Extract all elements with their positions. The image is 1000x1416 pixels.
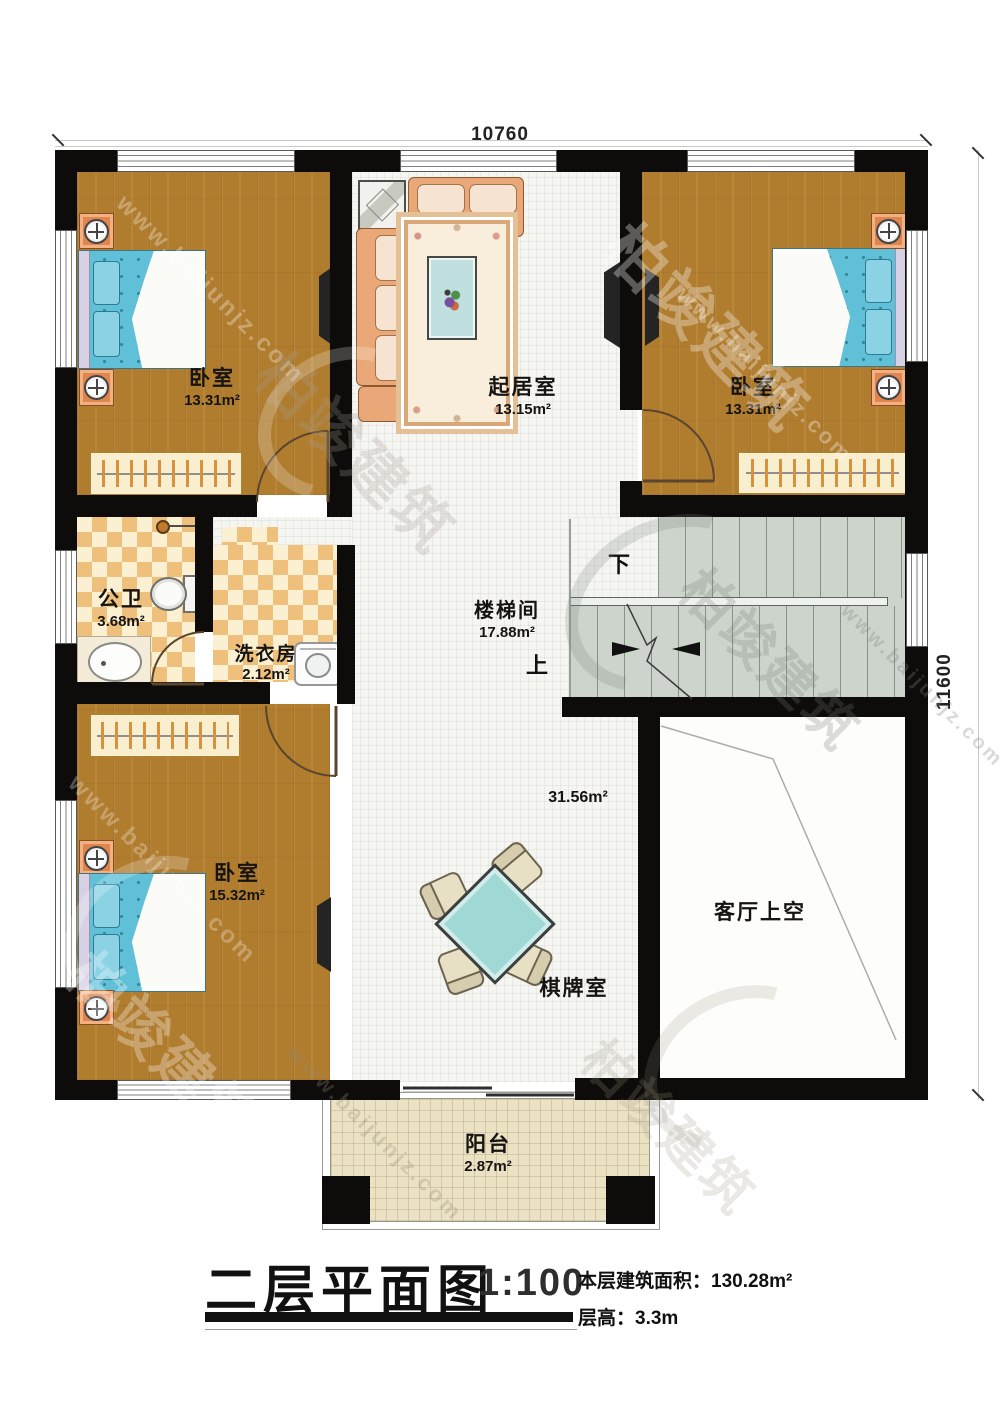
bed-blanket xyxy=(773,249,850,366)
room-label-gameroom: 棋牌室 xyxy=(504,977,644,1002)
window xyxy=(55,230,77,368)
sofa-cushion xyxy=(469,184,517,214)
tv xyxy=(604,262,620,348)
dimension-top: 10760 xyxy=(440,124,560,146)
room-label-void: 客厅上空 xyxy=(680,901,840,926)
wall-bath-bedroombl-b xyxy=(337,682,355,704)
stair-treads-upper xyxy=(658,517,905,598)
nightstand xyxy=(79,369,114,406)
room-label-stairwell: 楼梯间 17.88m² xyxy=(448,600,566,641)
tv xyxy=(645,268,659,346)
wall-bottom-right xyxy=(575,1078,928,1100)
window xyxy=(906,553,928,647)
wall-bathroom-right xyxy=(195,517,213,632)
floor-area-label: 本层建筑面积： xyxy=(578,1271,711,1292)
wardrobe xyxy=(738,452,907,494)
laundry-floor-notch xyxy=(222,527,278,545)
title-underline-thin xyxy=(205,1329,577,1330)
bed xyxy=(78,250,206,369)
pillow xyxy=(865,259,892,303)
hangers-icon xyxy=(751,459,895,486)
wall-mid-left-a xyxy=(55,495,257,517)
nightstand xyxy=(871,369,906,406)
plan-scale: 1:100 xyxy=(478,1262,585,1305)
shower-head-icon xyxy=(156,520,170,534)
sink-basin xyxy=(88,642,142,682)
floor-plan-page: 10760 11600 xyxy=(0,0,1000,1416)
floor-area-line: 本层建筑面积：130.28m² xyxy=(578,1266,792,1293)
room-label-laundry: 洗衣房 2.12m² xyxy=(198,644,334,684)
balcony-pillar xyxy=(606,1176,655,1224)
room-label-bedroom-tr: 卧室 13.31m² xyxy=(673,376,833,418)
title-underline xyxy=(205,1312,573,1322)
lamp-icon xyxy=(876,375,901,400)
floor-height-value: 3.3m xyxy=(635,1308,678,1329)
floor-height-line: 层高：3.3m xyxy=(578,1303,678,1330)
tv xyxy=(317,897,331,972)
stair-up-label: 上 xyxy=(526,648,548,680)
bed xyxy=(772,248,907,367)
room-label-bathroom: 公卫 3.68m² xyxy=(62,588,180,630)
window xyxy=(400,150,557,172)
dimension-line-top2 xyxy=(55,146,928,147)
bed-blanket xyxy=(132,251,205,368)
window xyxy=(117,150,295,172)
wall-stair-bottom xyxy=(562,697,928,717)
wall-bedroomtl-living xyxy=(330,172,352,517)
lamp-icon xyxy=(84,996,109,1021)
bed-headboard xyxy=(79,874,90,991)
stair-rail xyxy=(570,597,888,606)
lamp-icon xyxy=(84,846,109,871)
wall-mid-right xyxy=(620,495,928,517)
nightstand xyxy=(79,840,114,875)
window xyxy=(906,230,928,362)
window xyxy=(687,150,855,172)
coffee-table xyxy=(427,256,477,340)
pillow xyxy=(93,934,120,980)
sofa-cushion xyxy=(417,184,465,214)
lamp-icon xyxy=(84,375,109,400)
pillow xyxy=(865,309,892,355)
wall-living-bedroomtr xyxy=(620,172,642,410)
window xyxy=(117,1080,291,1100)
void-floor xyxy=(660,717,905,1075)
shower-pipe xyxy=(168,525,195,527)
room-label-bedroom-tl: 卧室 13.31m² xyxy=(132,367,292,409)
window xyxy=(55,800,77,988)
bed-headboard xyxy=(79,251,90,368)
wardrobe xyxy=(90,714,240,757)
dimension-right: 11600 xyxy=(934,610,956,710)
stair-treads-lower xyxy=(570,606,905,697)
wall-gameroom-void xyxy=(638,717,660,1080)
room-label-living: 起居室 13.15m² xyxy=(443,376,603,418)
hangers-icon xyxy=(101,722,228,750)
floor-area-value: 130.28m² xyxy=(711,1271,792,1292)
wardrobe xyxy=(90,452,242,495)
nightstand xyxy=(871,213,906,249)
nightstand xyxy=(79,990,114,1025)
nightstand xyxy=(79,213,114,249)
sink-counter xyxy=(77,636,151,684)
lamp-icon xyxy=(84,219,109,244)
room-label-balcony: 阳台 2.87m² xyxy=(408,1133,568,1175)
balcony-pillar xyxy=(322,1176,370,1224)
hangers-icon xyxy=(102,460,231,488)
pillow xyxy=(93,884,120,928)
stair-down-label: 下 xyxy=(608,547,630,579)
room-label-bedroom-bl: 卧室 15.32m² xyxy=(157,862,317,904)
floor-height-label: 层高： xyxy=(578,1308,635,1329)
wall-laundry-right xyxy=(337,545,355,682)
pillow xyxy=(93,261,120,305)
dimension-line-right xyxy=(978,150,979,1100)
room-label-gameroom-area: 31.56m² xyxy=(518,789,638,808)
pillow xyxy=(93,311,120,357)
wall-mid-left-b xyxy=(327,495,352,517)
wall-bath-bedroombl-a xyxy=(55,682,270,704)
lamp-icon xyxy=(876,219,901,244)
